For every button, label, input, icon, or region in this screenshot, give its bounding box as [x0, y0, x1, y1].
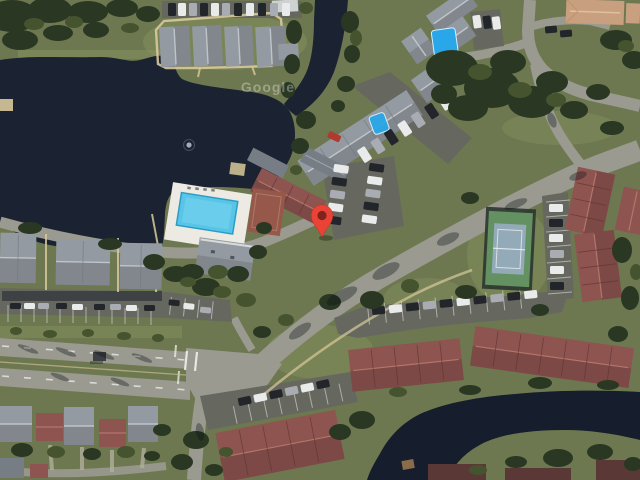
tennis-court [482, 207, 536, 292]
pin-shadow [319, 235, 333, 241]
house-red-1 [36, 413, 63, 441]
fountain [186, 142, 191, 147]
pin-inner-dot [317, 211, 326, 220]
house-gray-2 [64, 407, 94, 445]
dock-lake [229, 162, 246, 176]
google-watermark: Google [241, 79, 295, 95]
house-gray-3 [128, 406, 158, 442]
apartment-complex-top [159, 20, 299, 72]
parking-lot-top-right [470, 9, 504, 50]
house-red-2 [99, 419, 126, 447]
house-corner-red [30, 464, 48, 478]
house-gray-1 [0, 406, 32, 442]
townhouse-row-east-2 [574, 230, 622, 302]
carport-roof [2, 291, 162, 301]
dock-west [0, 99, 13, 111]
satellite-map-canvas[interactable]: Google [0, 0, 640, 480]
map-tile-layer: Google [0, 0, 640, 480]
house-corner [0, 458, 24, 478]
building-tan [566, 0, 640, 26]
